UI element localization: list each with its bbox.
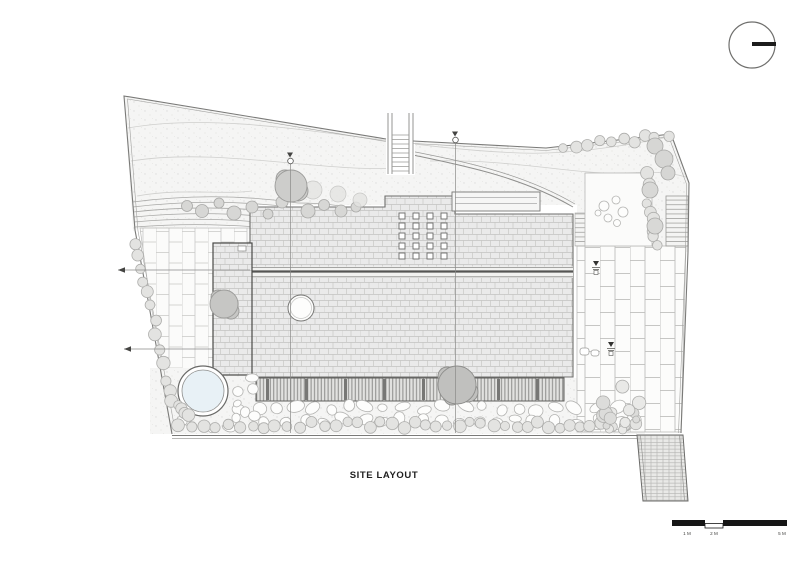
shrub: [157, 356, 170, 369]
shrub: [151, 315, 162, 326]
shrub: [155, 345, 165, 355]
shrub: [352, 417, 363, 428]
small-tree: [263, 209, 273, 219]
shrub: [619, 133, 630, 144]
scale-label-1m: 1 M: [683, 531, 691, 536]
small-tree: [335, 205, 347, 217]
shrub: [386, 417, 398, 429]
shrub: [442, 421, 451, 430]
shrub: [198, 420, 210, 432]
small-tree: [330, 186, 346, 202]
small-tree: [182, 201, 193, 212]
shrub: [641, 167, 654, 180]
shrub: [629, 137, 640, 148]
shrub: [320, 421, 331, 432]
shrub: [595, 136, 605, 146]
tree-west-wing: [210, 290, 239, 319]
small-tree: [301, 204, 315, 218]
north-indicator-icon: [729, 22, 776, 68]
shrub: [295, 422, 306, 433]
small-tree: [246, 201, 258, 213]
shrub: [475, 418, 485, 428]
roof-gutter: [250, 267, 573, 279]
small-tree: [319, 200, 330, 211]
shrub: [555, 423, 565, 433]
stone: [248, 411, 260, 422]
shrub: [365, 422, 377, 434]
shrub: [258, 423, 269, 434]
scale-label-2m: 2 M: [710, 531, 718, 536]
shrub: [582, 140, 594, 152]
shrub: [343, 417, 353, 427]
stone: [377, 404, 387, 412]
shrub: [430, 421, 441, 432]
shrub: [130, 239, 141, 250]
shrub: [145, 300, 155, 310]
shrub: [420, 420, 430, 430]
shrub: [187, 422, 197, 432]
shrub: [653, 241, 663, 251]
shrub: [620, 417, 630, 427]
shrub: [604, 412, 616, 424]
shrub: [182, 409, 195, 422]
side-steps-strip: [575, 213, 585, 246]
driveway-ramp: [637, 435, 688, 501]
entry-stairs: [386, 113, 415, 175]
shrub: [234, 422, 245, 433]
main-roof: [250, 192, 573, 377]
shrub: [210, 423, 220, 433]
shrub: [465, 417, 474, 426]
shrub: [136, 264, 145, 273]
small-tree: [353, 193, 367, 207]
shrub: [141, 286, 153, 298]
shrub: [249, 422, 259, 432]
shrub: [542, 422, 554, 434]
scale-label-5m: 5 M: [778, 531, 786, 536]
small-tree: [227, 206, 241, 220]
shrub: [531, 416, 543, 428]
drawing-title: SITE LAYOUT: [350, 470, 419, 481]
shrub: [564, 420, 576, 432]
shrub: [633, 416, 640, 423]
shrub: [330, 420, 342, 432]
shrub: [149, 328, 162, 341]
right-deck-steps: [666, 196, 688, 246]
shrub: [409, 416, 421, 428]
stone: [232, 386, 243, 396]
stone: [246, 374, 259, 382]
shrub: [584, 420, 595, 431]
stone: [477, 401, 486, 410]
shrub: [375, 417, 385, 427]
patio: [585, 173, 652, 246]
shrub: [606, 137, 616, 147]
shrub: [398, 422, 411, 435]
shrub: [571, 141, 583, 153]
shrub: [616, 380, 629, 393]
shrub: [559, 144, 568, 153]
shrub: [132, 249, 144, 261]
small-tree: [196, 205, 209, 218]
shrub: [596, 396, 610, 410]
shrub: [306, 417, 317, 428]
stone: [232, 413, 241, 423]
drawing-sheet: SITE LAYOUT 1 M 2 M 5 M: [0, 0, 800, 566]
shrub: [172, 419, 185, 432]
shrub: [624, 404, 635, 415]
stone: [344, 399, 355, 411]
small-tree: [214, 198, 224, 208]
shrub: [575, 422, 585, 432]
shrub: [268, 420, 280, 432]
shrub: [512, 422, 523, 433]
shrub: [500, 421, 509, 430]
skylight-circle: [288, 295, 314, 321]
scale-bar: 1 M 2 M 5 M: [672, 520, 787, 536]
site-plan-svg: SITE LAYOUT 1 M 2 M 5 M: [0, 0, 800, 566]
entry-canopy: [452, 192, 540, 211]
section-arrows: [118, 267, 131, 351]
timber-deck: [256, 378, 564, 401]
section-marker-2: [452, 132, 458, 143]
shrub: [223, 419, 233, 429]
shrub: [664, 131, 674, 141]
shrub: [488, 419, 500, 431]
